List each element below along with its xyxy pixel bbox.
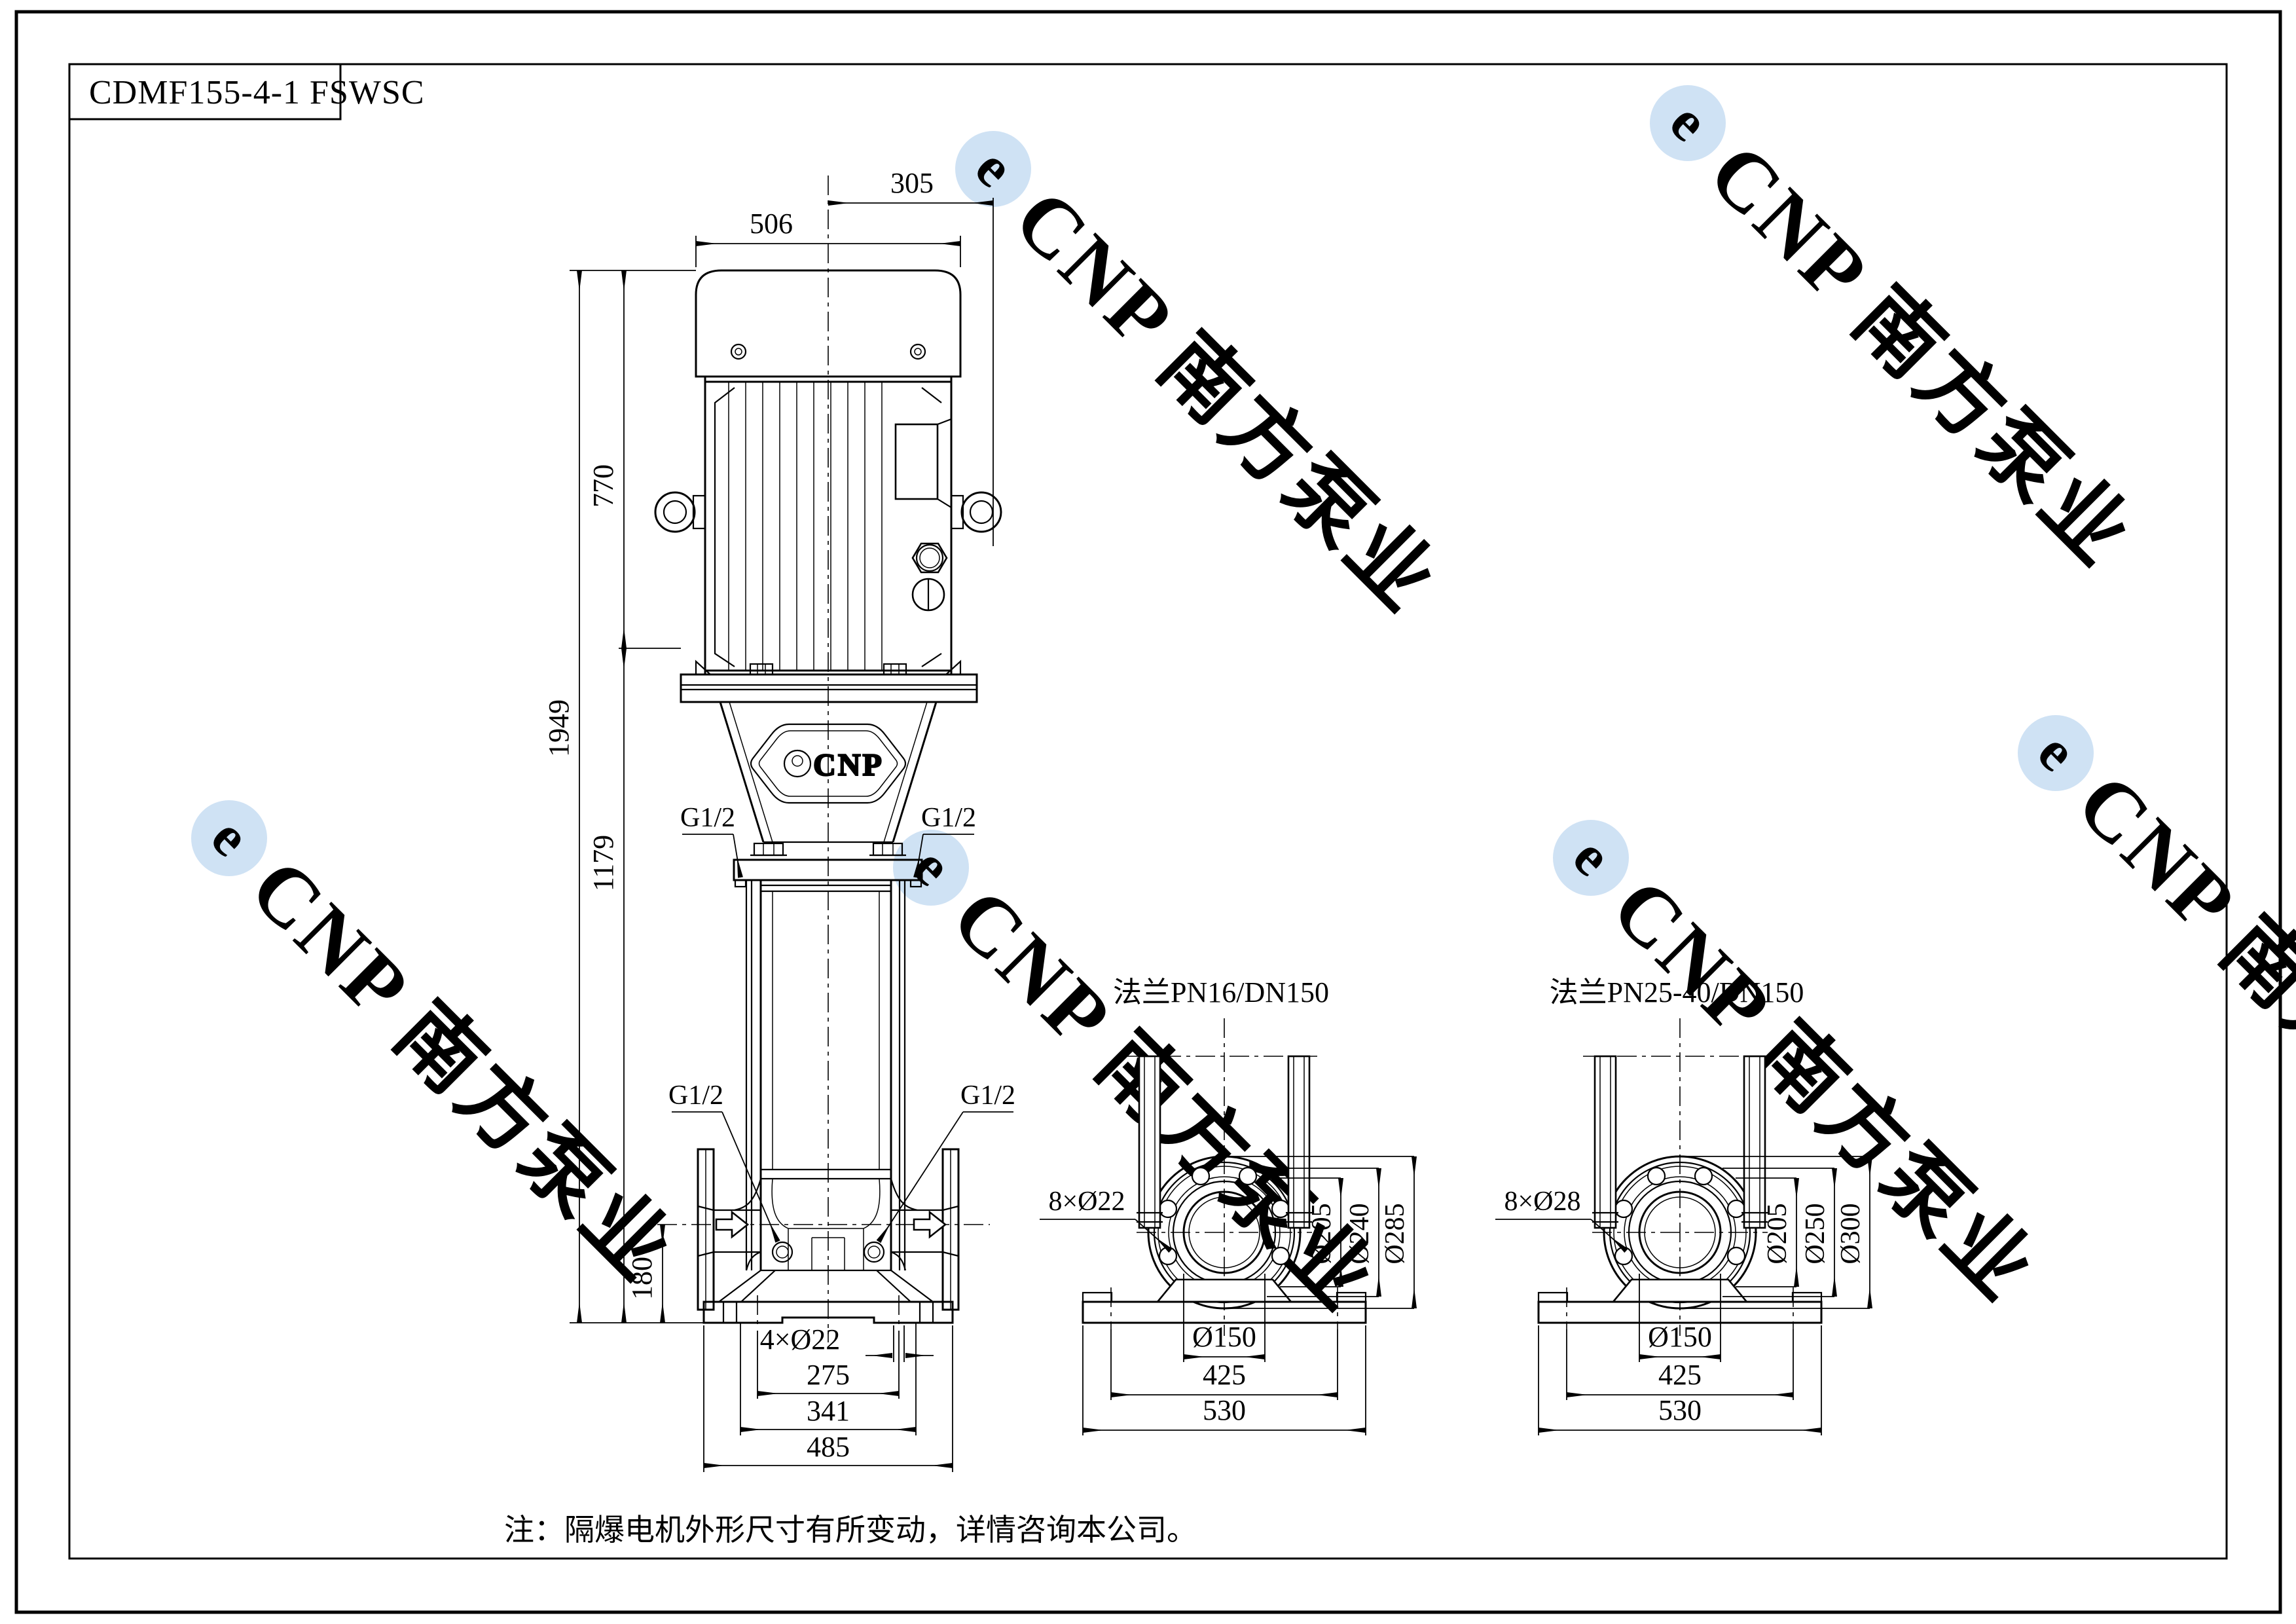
dim-pump-height: 1179: [587, 835, 619, 891]
dim-center-offset: 305: [890, 167, 934, 199]
flange-pn25-title: 法兰PN25-40/DN150: [1550, 976, 1804, 1008]
dim-base-width: 485: [807, 1431, 850, 1463]
terminal-box: [896, 419, 951, 610]
watermark-layer: [170, 63, 2296, 1329]
pn25-holes-label: 8×Ø28: [1504, 1187, 1580, 1217]
pn25-hole-span: 425: [1658, 1359, 1702, 1391]
dim-motor-height: 770: [587, 464, 619, 507]
sheet-frame: CDMF155-4-1 FSWSC: [16, 12, 2280, 1612]
dim-hole-span: 275: [807, 1359, 850, 1391]
motor-side-panel-left: [715, 388, 735, 667]
drawing-title: CDMF155-4-1 FSWSC: [89, 74, 425, 111]
cnp-badge-text: CNP: [813, 748, 884, 783]
pn16-d-bolt: Ø240: [1345, 1203, 1375, 1264]
flow-arrow-in-icon: [716, 1212, 748, 1237]
dim-total-height: 1949: [543, 699, 575, 757]
drawing-sheet: e CNP 南方泵业 CDMF155-4-1 FSWSC: [0, 0, 2296, 1624]
pn25-bore: Ø150: [1648, 1321, 1712, 1353]
flow-arrow-out-icon: [914, 1212, 945, 1237]
pn16-base-width: 530: [1203, 1394, 1246, 1426]
dim-base-holes: 4×Ø22: [760, 1323, 841, 1356]
dim-port-height: 180: [626, 1257, 658, 1300]
tie-rods: [746, 880, 905, 1270]
flange-pn16-title: 法兰PN16/DN150: [1113, 976, 1329, 1008]
motor-stool-plate: [681, 661, 977, 702]
drain-plug-right: [864, 1242, 884, 1262]
vent-right-label: G1/2: [921, 803, 976, 833]
pn25-d-outer: Ø300: [1836, 1203, 1866, 1264]
pump-column: [746, 880, 905, 1270]
drain-left-label: G1/2: [668, 1080, 723, 1111]
discharge-flange: [943, 1149, 958, 1310]
pn16-d-face: Ø205: [1307, 1203, 1337, 1264]
drain-plug-left: [773, 1242, 792, 1262]
suction-flange: [698, 1149, 714, 1310]
pn16-holes-label: 8×Ø22: [1048, 1187, 1125, 1217]
pn25-d-face: Ø205: [1762, 1203, 1793, 1264]
drain-right-label: G1/2: [960, 1080, 1015, 1111]
cnp-badge-logo-icon: [784, 750, 811, 777]
pn16-bore: Ø150: [1192, 1321, 1256, 1353]
pn16-hole-span: 425: [1203, 1359, 1246, 1391]
pn16-d-outer: Ø285: [1380, 1203, 1410, 1264]
dim-mid-span: 341: [807, 1395, 850, 1427]
outer-border: [16, 12, 2280, 1612]
pn25-d-bolt: Ø250: [1800, 1203, 1831, 1264]
note-text: 注：隔爆电机外形尺寸有所变动，详情咨询本公司。: [504, 1513, 1197, 1547]
lifting-eye-left: [655, 492, 705, 532]
dim-motor-width: 506: [750, 208, 793, 240]
pn25-base-width: 530: [1658, 1394, 1702, 1426]
vent-left-label: G1/2: [680, 803, 735, 833]
